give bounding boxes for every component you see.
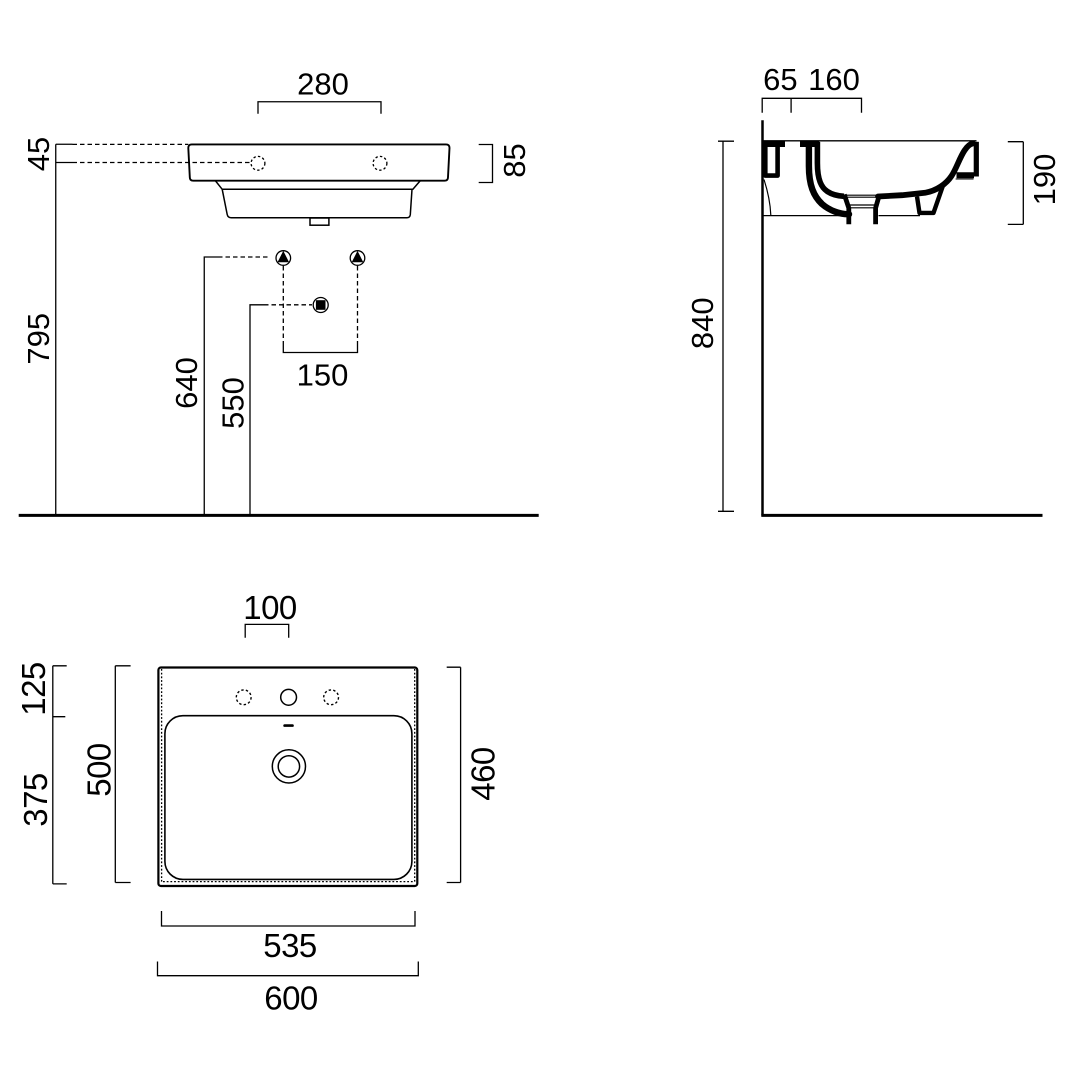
svg-text:640: 640 <box>169 357 204 409</box>
svg-text:160: 160 <box>808 62 860 97</box>
svg-text:460: 460 <box>464 747 501 801</box>
svg-text:795: 795 <box>21 313 56 365</box>
svg-text:190: 190 <box>1027 154 1062 206</box>
svg-text:150: 150 <box>297 358 349 393</box>
svg-text:125: 125 <box>15 662 52 716</box>
svg-text:100: 100 <box>243 589 297 626</box>
svg-text:600: 600 <box>264 980 318 1017</box>
svg-text:280: 280 <box>297 67 349 102</box>
svg-text:45: 45 <box>21 137 56 171</box>
svg-text:840: 840 <box>685 297 720 349</box>
svg-text:535: 535 <box>263 927 317 964</box>
svg-text:375: 375 <box>17 773 54 827</box>
svg-text:550: 550 <box>216 377 251 429</box>
svg-text:65: 65 <box>763 62 797 97</box>
svg-text:85: 85 <box>497 143 532 177</box>
svg-text:500: 500 <box>80 743 117 797</box>
